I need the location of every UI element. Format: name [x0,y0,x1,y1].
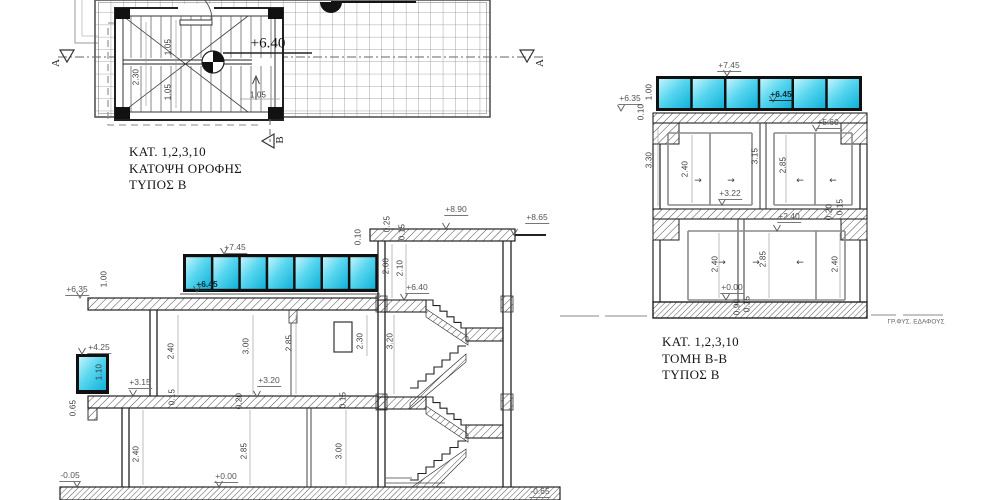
section-b-title-line-3: ΤΥΠΟΣ Β [662,367,739,384]
section-b-title: ΚΑΤ. 1,2,3,10 ΤΟΜΗ Β-Β ΤΥΠΟΣ Β [662,334,739,384]
section-a-linework [60,223,560,500]
cad-linework [0,0,1000,500]
roof-plan-title-line-3: ΤΥΠΟΣ Β [129,177,242,194]
roof-plan-title: ΚΑΤ. 1,2,3,10 ΚΑΤΟΨΗ ΟΡΟΦΗΣ ΤΥΠΟΣ Β [129,144,242,194]
roof-plan-title-line-1: ΚΑΤ. 1,2,3,10 [129,144,242,161]
roof-plan-title-line-2: ΚΑΤΟΨΗ ΟΡΟΦΗΣ [129,161,242,178]
roof-plan-linework [58,0,545,148]
cad-sheet: 2.301.051.051.05+6.40AAB+7.45+6.45+6.35+… [0,0,1000,500]
section-b-title-line-1: ΚΑΤ. 1,2,3,10 [662,334,739,351]
section-b-linework [560,70,943,318]
section-b-title-line-2: ΤΟΜΗ Β-Β [662,351,739,368]
